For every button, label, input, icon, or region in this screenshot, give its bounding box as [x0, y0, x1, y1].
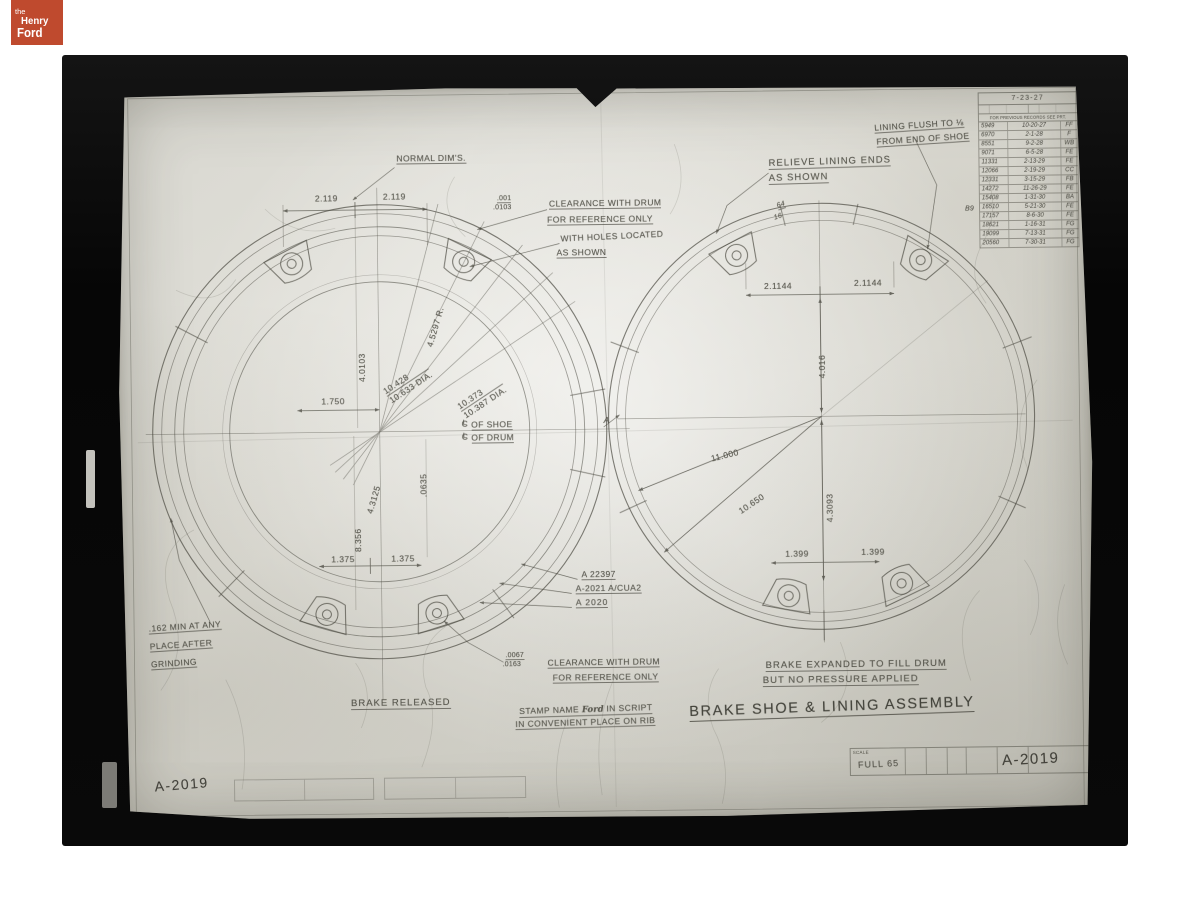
- note-clearance-bot-1: CLEARANCE WITH DRUM: [547, 656, 660, 668]
- revision-cell: 19099: [980, 230, 1009, 238]
- revision-cell: 6970: [979, 131, 1008, 139]
- part-number: A 2020: [576, 597, 609, 608]
- dim: .0103: [493, 204, 512, 211]
- revision-cell: 17157: [980, 212, 1009, 220]
- logo-henry: Henry: [21, 16, 48, 27]
- stamp-box: [234, 778, 374, 802]
- revision-rows: 594910-20-27FF69702-1-28F85519-2-28WB907…: [978, 121, 1080, 248]
- revision-cell: 20560: [980, 239, 1009, 247]
- revision-cell: 8551: [979, 140, 1008, 148]
- revision-cell: WB: [1061, 139, 1077, 147]
- dim: 2.119: [383, 191, 406, 201]
- revision-cell: 11-26-29: [1009, 184, 1062, 193]
- part-number: A-2021 A/CUA2: [576, 583, 642, 595]
- revision-cell: 5949: [979, 122, 1008, 130]
- revision-cell: FF: [1061, 121, 1077, 129]
- revision-cell: 12331: [980, 176, 1009, 184]
- revision-cell: FE: [1062, 202, 1078, 210]
- revision-cell: 3-15-29: [1009, 175, 1062, 184]
- label-centerline-drum: CL OF DRUM: [462, 432, 514, 443]
- dim: .0067: [505, 652, 524, 660]
- dim: .0635: [418, 474, 428, 498]
- scale-label: SCALE: [853, 750, 869, 755]
- revision-cell: 7-30-31: [1009, 238, 1062, 247]
- dim: 4.3093: [825, 494, 835, 523]
- revision-cell: 12066: [980, 167, 1009, 175]
- dim: 1.750: [321, 396, 345, 406]
- dim: .001: [497, 195, 512, 203]
- revision-cell: 2-19-29: [1009, 166, 1062, 175]
- note-normal-dims: NORMAL DIM'S.: [396, 153, 466, 165]
- dim: 1.399: [861, 547, 885, 557]
- revision-cell: BA: [1062, 193, 1078, 201]
- revision-cell: 11331: [979, 158, 1008, 166]
- revision-cell: 15408: [980, 194, 1009, 202]
- dim: 8.356: [353, 528, 363, 552]
- revision-cell: 2-1-28: [1008, 130, 1061, 139]
- scale-value: FULL 65: [858, 758, 900, 770]
- part-number: A 22397: [581, 569, 615, 580]
- dim: 1.399: [785, 549, 809, 559]
- note-grinding: .162 MIN AT ANY PLACE AFTER GRINDING: [148, 614, 224, 673]
- revision-cell: FG: [1062, 220, 1078, 228]
- dim: 4.0103: [357, 353, 367, 382]
- caption-expanded-2: BUT NO PRESSURE APPLIED: [763, 673, 919, 687]
- revision-cell: 7-13-31: [1009, 229, 1062, 238]
- revision-cell: FG: [1062, 229, 1078, 237]
- henry-ford-logo[interactable]: the Henry Ford: [11, 0, 63, 45]
- caption-expanded-1: BRAKE EXPANDED TO FILL DRUM: [766, 658, 947, 672]
- blueprint-paper: NORMAL DIM'S. 2.119 2.119 .001 .0103 CLE…: [114, 79, 1098, 827]
- revision-cell: CC: [1062, 166, 1078, 174]
- revision-cell: FB: [1062, 175, 1078, 183]
- revision-cell: FE: [1062, 211, 1078, 219]
- note-clearance-top-2: FOR REFERENCE ONLY: [547, 213, 653, 225]
- dim: 1.375: [331, 554, 355, 564]
- note-clearance-bot-2: FOR REFERENCE ONLY: [553, 671, 659, 683]
- light-leak: [102, 762, 117, 808]
- revision-date: 7-23-27: [978, 91, 1078, 105]
- revision-cell: 1-16-31: [1009, 220, 1062, 229]
- drawing-photo: NORMAL DIM'S. 2.119 2.119 .001 .0103 CLE…: [62, 55, 1128, 846]
- revision-cell: 6-5-28: [1008, 148, 1061, 157]
- revision-cell: 14272: [980, 185, 1009, 193]
- caption-brake-released: BRAKE RELEASED: [351, 697, 451, 710]
- page: the Henry Ford: [0, 0, 1200, 900]
- revision-row: 205607-30-31FG: [979, 238, 1079, 248]
- revision-table: 7-23-27 FOR PREVIOUS RECORDS SEE PRT. 59…: [978, 91, 1080, 248]
- label-centerline-shoe: CL OF SHOE: [462, 419, 513, 430]
- light-leak: [86, 450, 95, 508]
- dim: 2.119: [315, 193, 338, 203]
- dim: 2.1144: [854, 278, 882, 288]
- note-relieve-2: AS SHOWN: [769, 171, 829, 185]
- note-clearance-top-1: CLEARANCE WITH DRUM: [549, 197, 662, 209]
- revision-cell: F: [1061, 130, 1077, 138]
- dim: 4.016: [817, 355, 827, 379]
- revision-cell: 16510: [980, 203, 1009, 211]
- stamp-box: [384, 776, 526, 800]
- section-label: A: [604, 415, 610, 425]
- revision-cell: 8-6-30: [1009, 211, 1062, 220]
- revision-cell: FE: [1061, 157, 1077, 165]
- revision-cell: FE: [1062, 184, 1078, 192]
- revision-cell: 10-20-27: [1008, 121, 1061, 130]
- dim: 1.375: [391, 553, 415, 563]
- revision-cell: 9-2-28: [1008, 139, 1061, 148]
- note-holes-2: AS SHOWN: [556, 247, 606, 259]
- revision-cell: 9071: [979, 149, 1008, 157]
- revision-cell: FE: [1061, 148, 1077, 156]
- revision-side-note: B9: [965, 205, 974, 212]
- revision-cell: 1-31-30: [1009, 193, 1062, 202]
- revision-cell: 2-13-29: [1008, 157, 1061, 166]
- dim: 2.1144: [764, 281, 792, 291]
- revision-cell: 18621: [980, 221, 1009, 229]
- logo-ford: Ford: [17, 27, 43, 40]
- revision-cell: 5-21-30: [1009, 202, 1062, 211]
- revision-cell: FG: [1062, 238, 1078, 246]
- ford-script: Ford: [582, 705, 604, 716]
- dim: .0163: [503, 661, 522, 668]
